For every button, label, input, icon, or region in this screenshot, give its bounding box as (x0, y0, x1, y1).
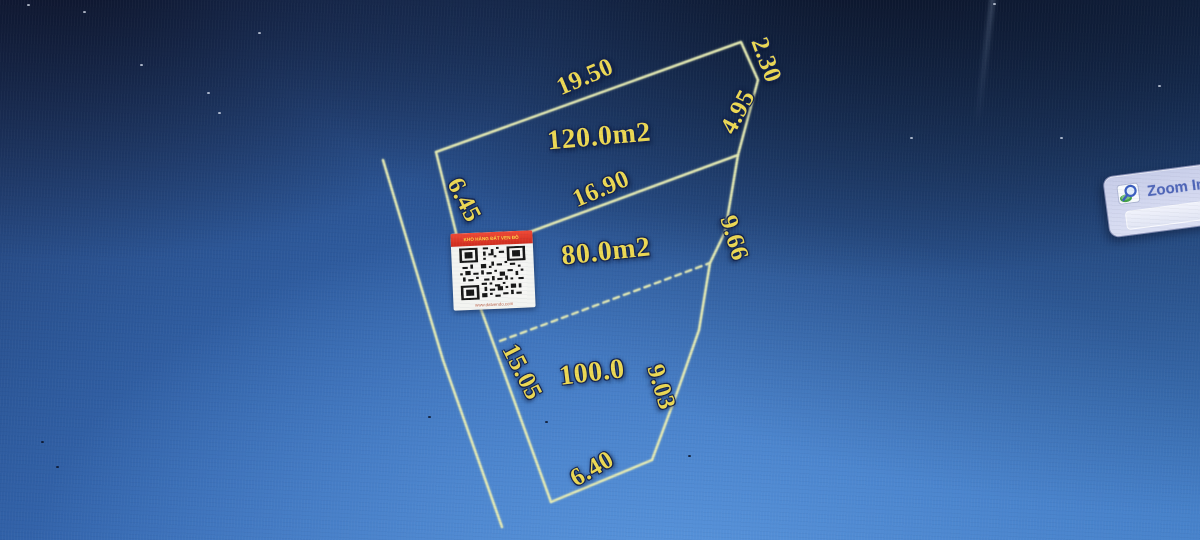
zoom-in-label: Zoom In (1146, 175, 1200, 199)
dust-speck (83, 11, 86, 13)
dust-speck (1158, 85, 1161, 87)
watermark-website-text: www.datvendo.com (475, 301, 513, 308)
watermark-qr-block: KHO HÀNG ĐẤT VEN ĐÔ www.datvendo.com (450, 230, 535, 311)
dust-speck (218, 112, 221, 114)
monitor-photo: 19.50 2.30 4.95 6.45 16.90 9.66 15.05 9.… (0, 0, 1200, 540)
dust-speck (1060, 137, 1063, 139)
dust-speck (27, 4, 30, 6)
dark-speck (428, 416, 431, 418)
dark-speck (41, 441, 44, 443)
dust-speck (207, 92, 210, 94)
dust-speck (258, 32, 261, 34)
zoom-in-icon (1116, 182, 1141, 205)
dark-speck (688, 455, 691, 457)
dust-speck (140, 64, 143, 66)
dark-speck (545, 421, 548, 423)
watermark-banner-text: KHO HÀNG ĐẤT VEN ĐÔ (464, 235, 519, 243)
watermark-banner: KHO HÀNG ĐẤT VEN ĐÔ (450, 230, 532, 247)
parcel-right-boundary (652, 155, 738, 460)
dust-speck (910, 137, 913, 139)
qr-code (459, 246, 527, 301)
dark-speck (56, 466, 59, 468)
